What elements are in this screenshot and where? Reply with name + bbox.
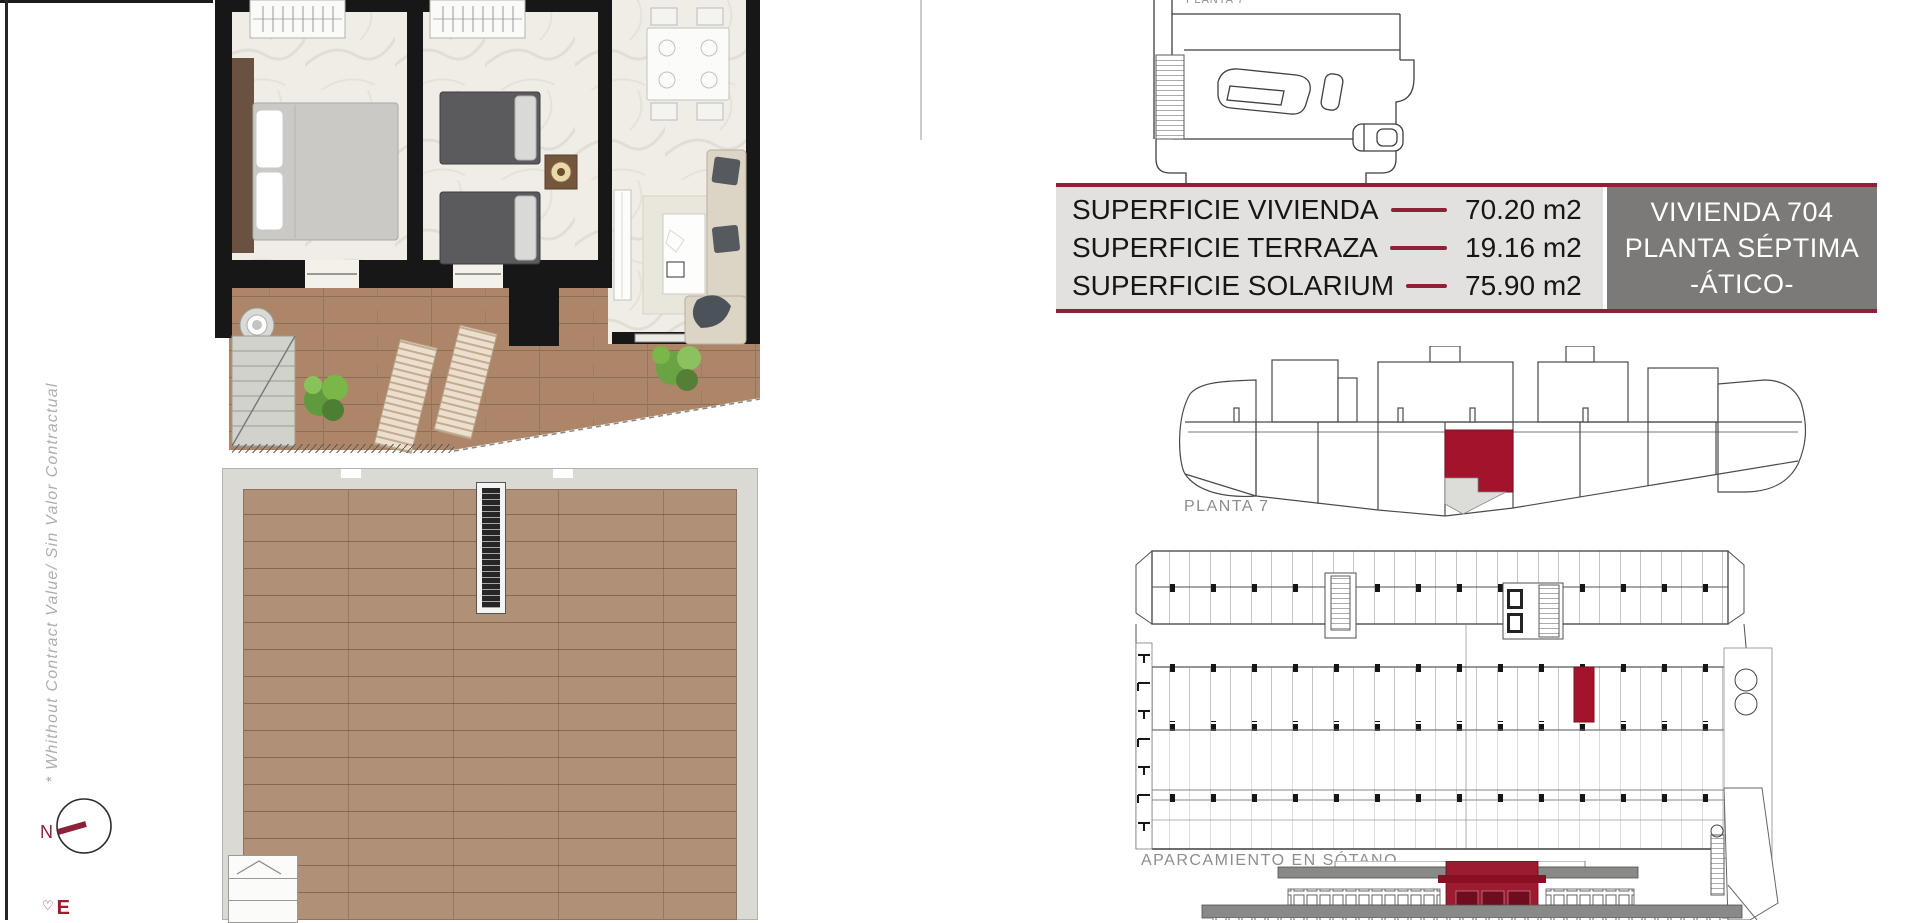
- terrace-railing: [232, 444, 454, 453]
- disclaimer-note: * Whithout Contract Value/ Sin Valor Con…: [44, 383, 68, 783]
- table-row: SUPERFICIE VIVIENDA 70.20 m2: [1072, 191, 1593, 229]
- leader-line: [1406, 284, 1447, 288]
- tub-outline: [1353, 124, 1403, 151]
- stair-access-hatch: [476, 482, 506, 614]
- surface-rows: SUPERFICIE VIVIENDA 70.20 m2 SUPERFICIE …: [1056, 187, 1603, 309]
- table-row: SUPERFICIE TERRAZA 19.16 m2: [1072, 229, 1593, 267]
- surface-label: SUPERFICIE TERRAZA: [1072, 232, 1378, 264]
- page-top-rule: [0, 0, 213, 3]
- headboard-panel: [232, 58, 254, 253]
- solarium-plan: [222, 468, 758, 920]
- surface-label: SUPERFICIE VIVIENDA: [1072, 194, 1379, 226]
- north-needle: [58, 824, 86, 832]
- coffee-table: [663, 214, 705, 294]
- brand-letter: E: [57, 899, 70, 917]
- leader-line: [1391, 208, 1447, 212]
- key-plan-label: PLANTA 7: [1184, 498, 1270, 516]
- surface-value: 70.20 m2: [1465, 194, 1593, 226]
- brand-mark-fragment: ♡ E: [42, 899, 70, 917]
- unit-floor: PLANTA SÉPTIMA: [1625, 230, 1860, 266]
- floor-key-plan: PLANTA 7: [1168, 346, 1816, 526]
- building-elevation: [1150, 861, 1790, 920]
- unit-number: VIVIENDA 704: [1650, 194, 1833, 230]
- compass-icon: N: [36, 793, 124, 865]
- surface-value: 75.90 m2: [1465, 270, 1593, 302]
- solarium-stairs: [228, 855, 298, 923]
- stair-core-2: [1539, 585, 1559, 637]
- plan-sheet-page: { "page": { "side_note": "* Whithout Con…: [0, 0, 1920, 920]
- stair-core: [1331, 576, 1350, 630]
- page-left-border: [5, 0, 8, 920]
- unit-type: -ÁTICO-: [1690, 266, 1794, 302]
- dining-table: [647, 28, 729, 100]
- brand-heart-icon: ♡: [42, 899, 54, 912]
- sofa-outline: [1218, 69, 1344, 114]
- unit-identity-box: VIVIENDA 704 PLANTA SÉPTIMA -ÁTICO-: [1607, 187, 1877, 309]
- table-row: SUPERFICIE SOLARIUM 75.90 m2: [1072, 267, 1593, 305]
- highlighted-parking-space: [1574, 667, 1594, 722]
- apartment-floor-plan: [215, 0, 760, 458]
- parapet-notch: [341, 469, 361, 478]
- surface-label: SUPERFICIE SOLARIUM: [1072, 270, 1394, 302]
- surface-table: SUPERFICIE VIVIENDA 70.20 m2 SUPERFICIE …: [1056, 183, 1877, 313]
- parapet-notch: [553, 469, 573, 478]
- book: [667, 262, 684, 277]
- terrace-stairs: [232, 336, 295, 446]
- north-label: N: [40, 822, 53, 842]
- surface-value: 19.16 m2: [1465, 232, 1593, 264]
- leader-line: [1390, 246, 1447, 250]
- staircase: [1156, 55, 1184, 139]
